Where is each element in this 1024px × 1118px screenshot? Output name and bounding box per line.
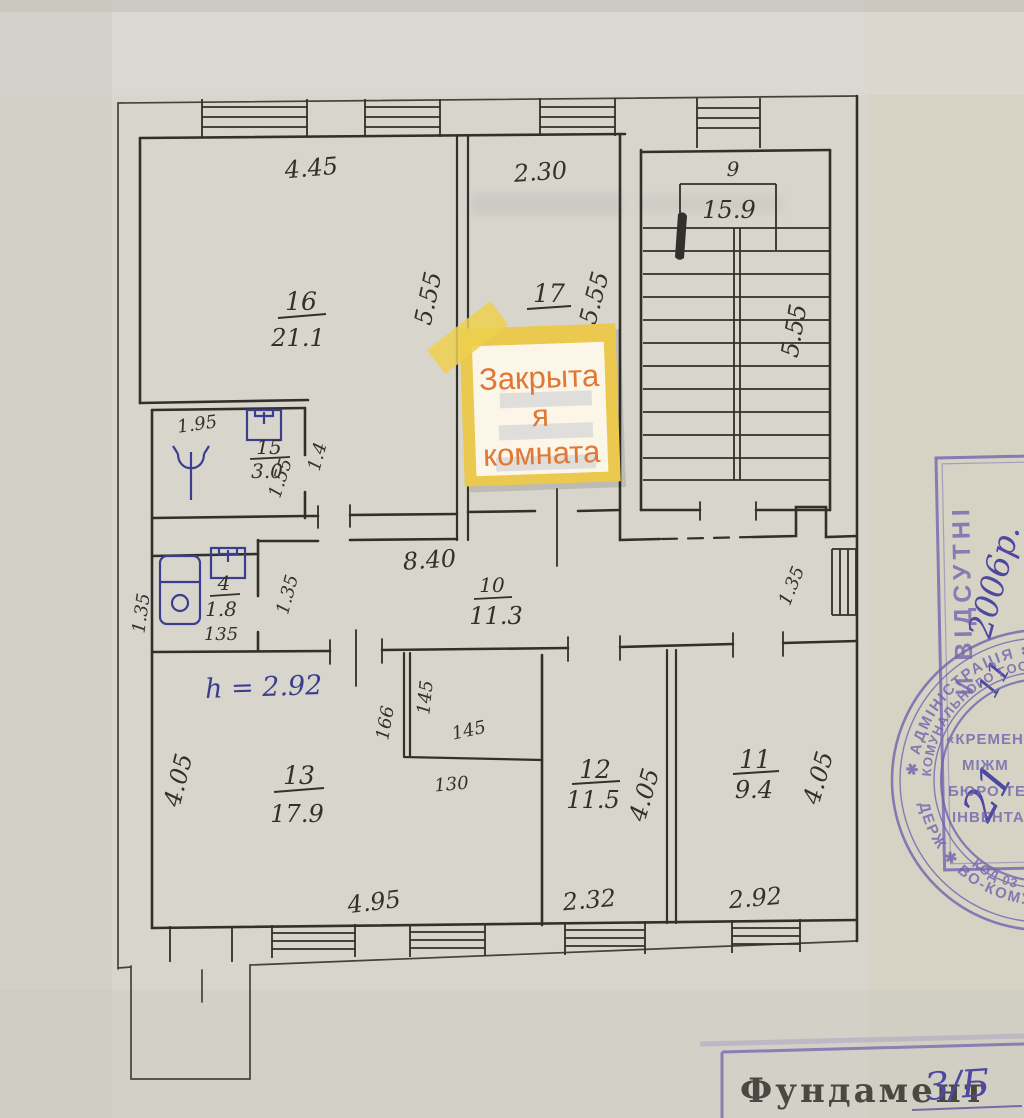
room-4-number: 4 [217,571,231,595]
dim-room11-bottom: 2.92 [726,882,783,915]
room-4-area: 1.8 [205,597,237,621]
floor-plan-photo: 16 21.1 4.45 5.55 17 2.30 5.55 9 15.9 5.… [0,0,1024,1118]
room-10-area: 11.3 [469,602,522,630]
room-10-number: 10 [479,573,505,597]
dim-niche-130: 130 [433,773,469,797]
seal-center-line: МІЖМ [962,757,1009,774]
floor-plan-canvas: 16 21.1 4.45 5.55 17 2.30 5.55 9 15.9 5.… [0,0,1024,1118]
room-16-number: 16 [285,287,317,316]
dim-corridor-top: 8.40 [402,544,457,576]
room-11-number: 11 [739,745,771,774]
room-15-number: 15 [256,435,281,459]
seal-center-line: БЮРО ТЕ [948,783,1024,800]
paper-background [0,0,1024,1118]
room-11-area: 9.4 [735,776,773,804]
stairs-number: 9 [727,157,740,181]
room-12-area: 11.5 [566,786,619,814]
room-12-number: 12 [579,755,611,784]
note-text-line: комната [483,434,602,473]
note-text-line: я [531,398,549,434]
note-text-line: Закрыта [478,358,600,397]
ceiling-height-note: h = 2.92 [205,670,323,705]
room-13-area: 17.9 [270,800,323,828]
room-16-area: 21.1 [270,324,324,352]
dim-room4-bottom: 135 [204,624,238,645]
dim-room16-top: 4.45 [282,152,339,185]
dim-room12-bottom: 2.32 [560,884,617,917]
dim-room17-top: 2.30 [512,156,568,188]
seal-center-line: ІНВЕНТАР [952,809,1024,826]
stairs-area: 15.9 [702,196,755,224]
foundation-value-handwritten: З/Б [924,1061,991,1109]
seal-center-line: «КРЕМЕН [946,731,1024,748]
dim-niche-145a: 145 [413,679,437,715]
room-17-number: 17 [533,279,565,308]
wall-corridor-top-right [620,539,660,540]
room-13-number: 13 [283,761,315,790]
